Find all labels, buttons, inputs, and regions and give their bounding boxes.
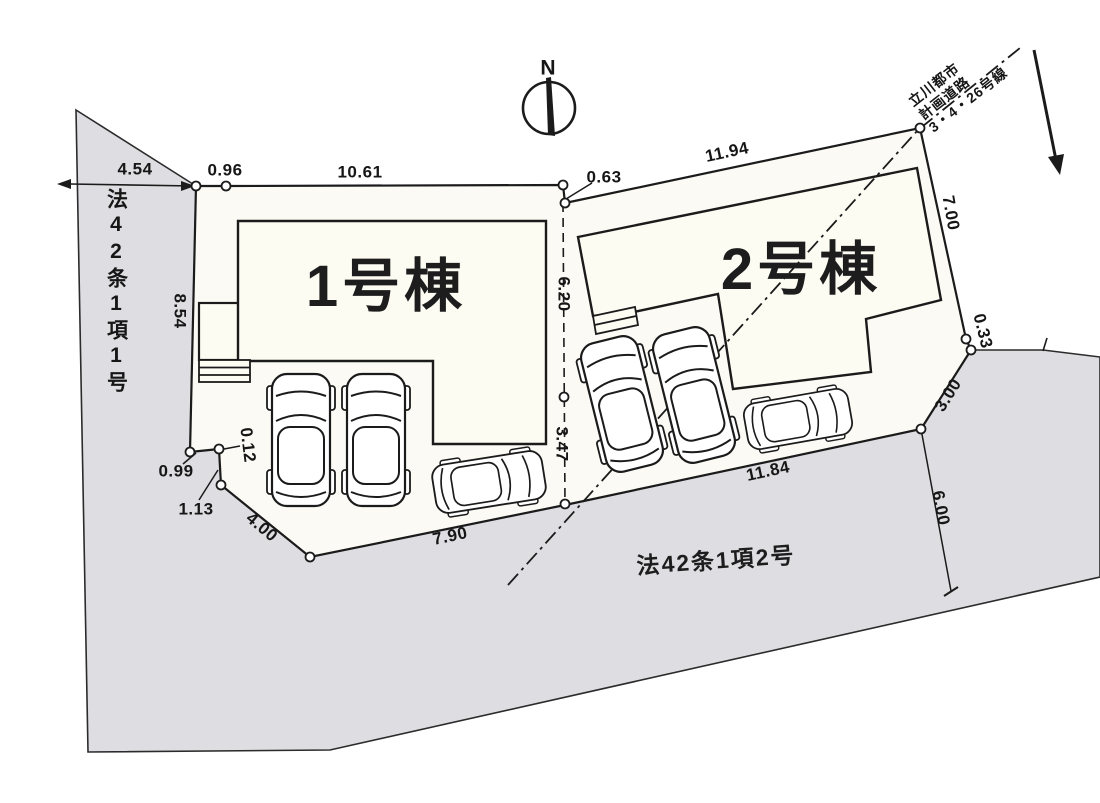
dim-4-54: 4.54 — [117, 161, 152, 178]
north-compass-icon — [523, 77, 575, 136]
road-corner-tick — [1043, 338, 1047, 351]
north-label: N — [540, 58, 555, 79]
road-direction-arrow — [1034, 50, 1064, 175]
building-2-label: 2号棟 — [721, 241, 881, 299]
site-plan: N 1号棟 2号棟 法42条1項1号 法42条1項2号 立川都市 計画道路 3・… — [0, 0, 1100, 803]
dim-0-12: 0.12 — [237, 427, 258, 464]
dim-6-20: 6.20 — [556, 276, 573, 311]
dim-10-61: 10.61 — [337, 164, 382, 181]
building-1-label: 1号棟 — [306, 258, 466, 316]
dim-3-47: 3.47 — [554, 426, 571, 461]
dim-0-63: 0.63 — [586, 169, 621, 186]
dim-1-13: 1.13 — [178, 501, 213, 518]
dim-8-54: 8.54 — [172, 293, 189, 328]
car-lot1-left — [267, 374, 335, 506]
car-lot1-right — [342, 374, 410, 506]
dim-0-99: 0.99 — [158, 463, 193, 480]
building-1-entrance-steps — [199, 360, 250, 382]
dim-0-96: 0.96 — [207, 162, 242, 179]
left-road-label: 法42条1項1号 — [106, 188, 127, 396]
